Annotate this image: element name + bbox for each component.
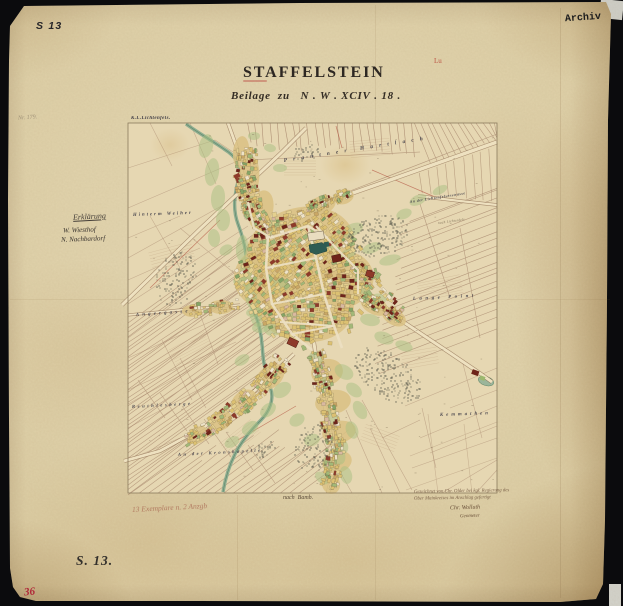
svg-text:K.L.Lichtenfels.: K.L.Lichtenfels. [130, 116, 171, 121]
